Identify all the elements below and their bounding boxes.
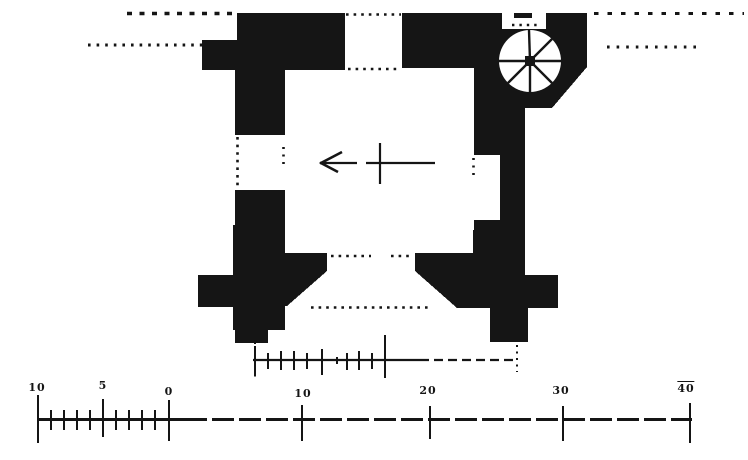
scale-major-tick xyxy=(562,406,564,441)
scale-major-tick xyxy=(37,395,39,443)
scale-minor-tick xyxy=(154,410,156,430)
scale-major-tick xyxy=(689,403,691,443)
scale-minor-tick xyxy=(63,410,65,430)
scale-label-40: 40 xyxy=(677,381,694,394)
scale-label-10: 10 xyxy=(294,388,311,399)
scale-label-20: 20 xyxy=(419,385,436,396)
scale-baseline-dashed xyxy=(185,418,692,421)
scale-major-tick xyxy=(168,400,170,441)
scale-minor-tick xyxy=(141,410,143,430)
scale-minor-tick xyxy=(50,410,52,430)
scale-minor-tick xyxy=(76,410,78,430)
scale-major-tick xyxy=(429,406,431,439)
scale-label-0: 0 xyxy=(165,386,174,397)
scale-baseline-solid xyxy=(38,418,185,421)
scale-bar: 105010203040 xyxy=(0,0,748,460)
scale-major-tick xyxy=(301,405,303,441)
scale-major-tick xyxy=(102,399,104,437)
scale-label-30: 30 xyxy=(552,385,569,396)
scale-label-10: 10 xyxy=(28,382,45,393)
floor-plan-figure: 105010203040 xyxy=(0,0,748,460)
scale-label-5: 5 xyxy=(99,380,108,391)
scale-minor-tick xyxy=(89,410,91,430)
scale-minor-tick xyxy=(128,410,130,430)
scale-minor-tick xyxy=(115,410,117,430)
